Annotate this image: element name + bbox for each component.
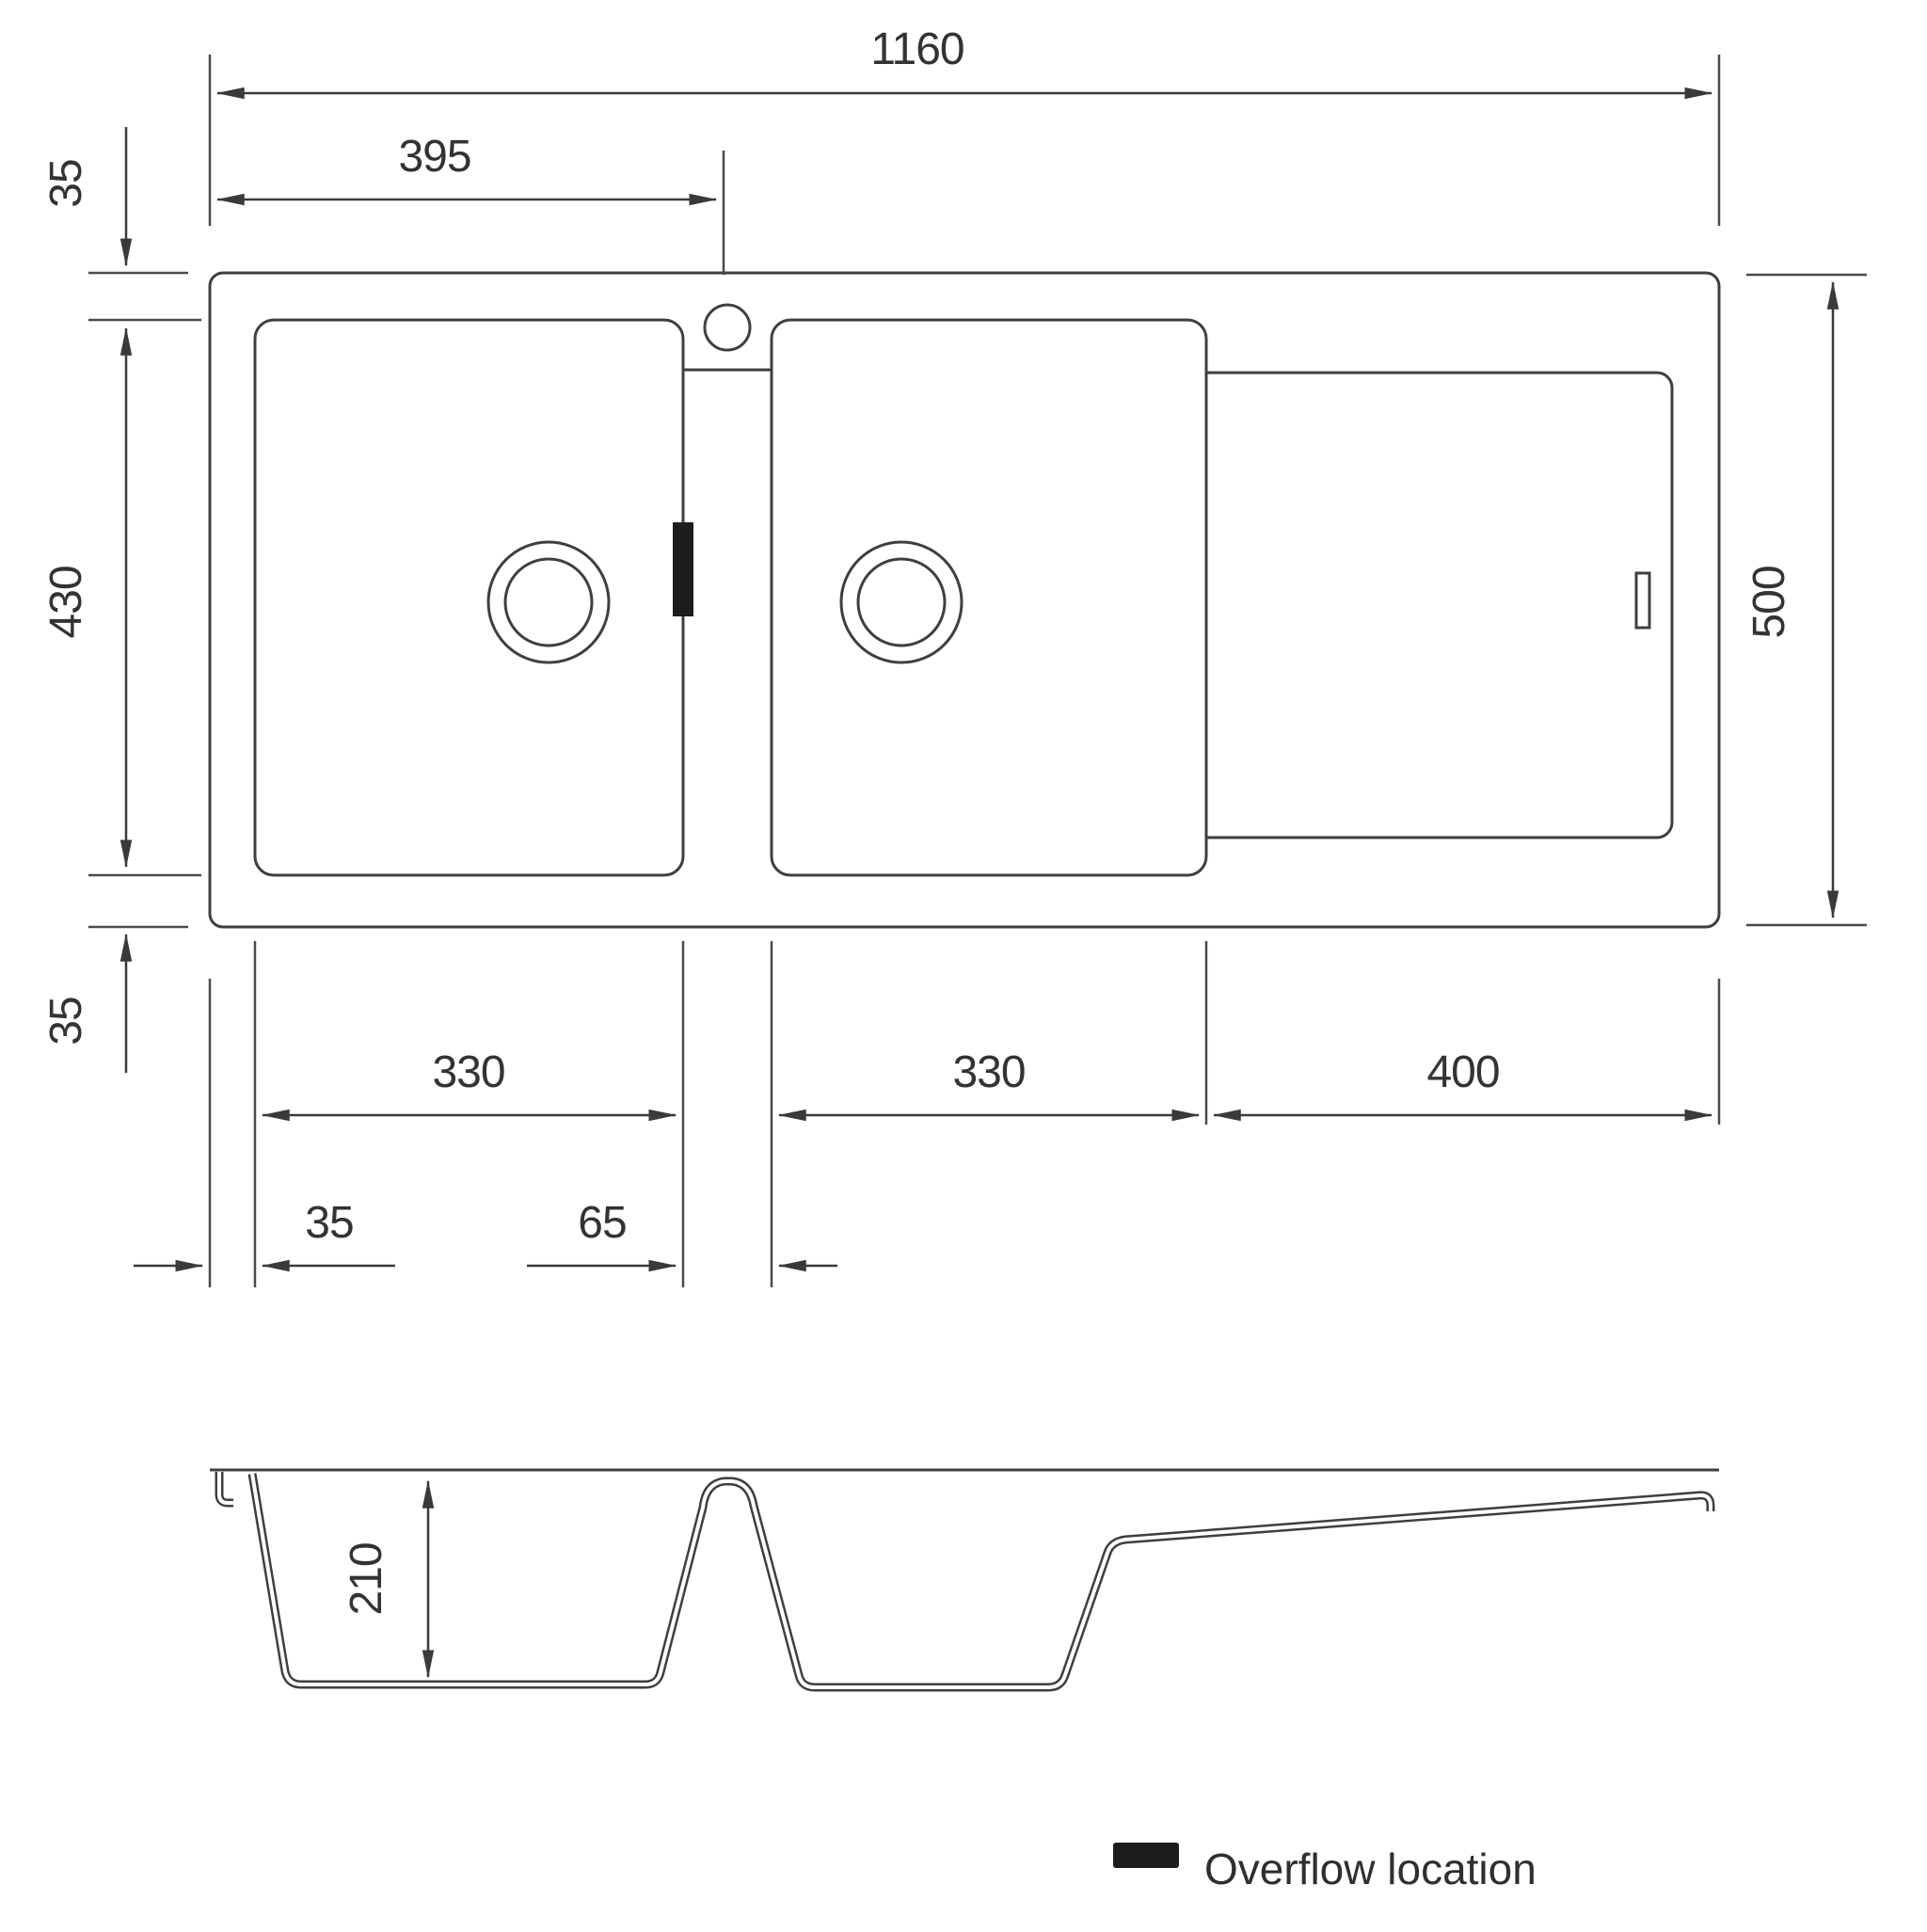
dim-rim-bottom: 35 [41, 927, 188, 1073]
dim-bowl-length: 430 [41, 328, 201, 875]
section-view: 210 [210, 1470, 1719, 1687]
dim-label-rim-top: 35 [41, 159, 91, 207]
sink-technical-drawing: 1160 395 35 430 35 50 [0, 0, 1927, 1927]
drainer-overflow-slot [1636, 573, 1649, 628]
dim-rim-top: 35 [41, 127, 201, 320]
dim-bowl1-width: 330 [263, 1047, 676, 1115]
dim-label-divider-width: 65 [578, 1198, 626, 1248]
dim-label-bowl2-width: 330 [952, 1047, 1025, 1097]
overflow-marker [673, 522, 693, 616]
dim-label-tap-center: 395 [398, 132, 470, 182]
dim-label-bowl1-width: 330 [432, 1047, 504, 1097]
overflow-swatch [1113, 1843, 1179, 1868]
section-profile [219, 1472, 1711, 1687]
dim-drainer-width: 400 [1214, 1047, 1712, 1115]
dim-label-rim-left: 35 [305, 1198, 353, 1248]
drainer-area [1171, 373, 1672, 838]
dim-label-bowl-depth: 210 [342, 1542, 391, 1615]
dim-tap-center: 395 [217, 132, 724, 275]
dim-label-bowl-length: 430 [41, 566, 91, 638]
bowl-left [255, 320, 683, 875]
dim-bowl-depth: 210 [342, 1481, 428, 1677]
dim-label-drainer-width: 400 [1426, 1047, 1499, 1097]
sink-technical-drawing-page: 1160 395 35 430 35 50 [0, 0, 1927, 1927]
legend-label: Overflow location [1204, 1844, 1537, 1893]
dim-label-rim-bottom: 35 [41, 997, 91, 1045]
dim-label-overall-width: 1160 [870, 24, 963, 74]
dim-label-overall-depth: 500 [1744, 566, 1794, 638]
tap-hole [705, 305, 750, 350]
dim-rim-left: 35 [134, 1198, 395, 1266]
bowl-right [772, 320, 1206, 875]
dim-overall-depth: 500 [1744, 275, 1867, 925]
plan-view: 1160 395 35 430 35 50 [41, 24, 1867, 1287]
dim-overall-width: 1160 [210, 24, 1719, 226]
dim-bowl2-width: 330 [779, 1047, 1199, 1115]
section-profile-inner-line [219, 1472, 1711, 1687]
legend: Overflow location [1113, 1843, 1537, 1893]
